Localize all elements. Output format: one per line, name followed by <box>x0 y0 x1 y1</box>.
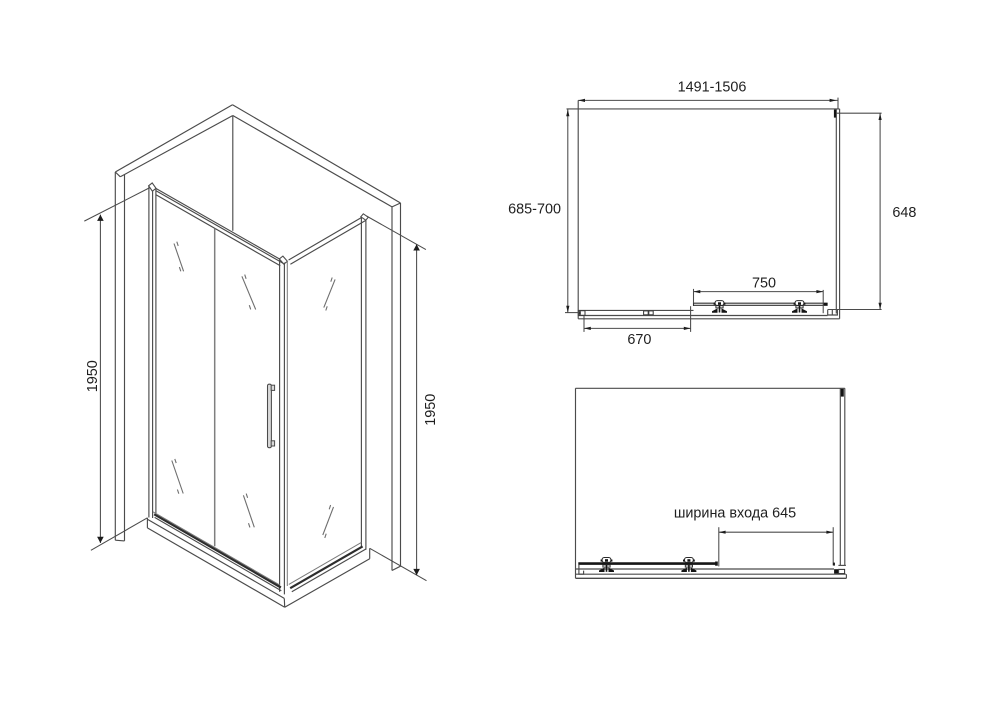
svg-text:750: 750 <box>752 276 776 292</box>
svg-text:1491-1506: 1491-1506 <box>678 79 747 95</box>
svg-text:670: 670 <box>627 332 651 348</box>
svg-text:685-700: 685-700 <box>508 202 561 218</box>
svg-text:1950: 1950 <box>423 394 439 426</box>
svg-text:1950: 1950 <box>85 360 101 392</box>
svg-text:ширина входа 645: ширина входа 645 <box>674 505 796 521</box>
svg-text:648: 648 <box>892 205 916 221</box>
